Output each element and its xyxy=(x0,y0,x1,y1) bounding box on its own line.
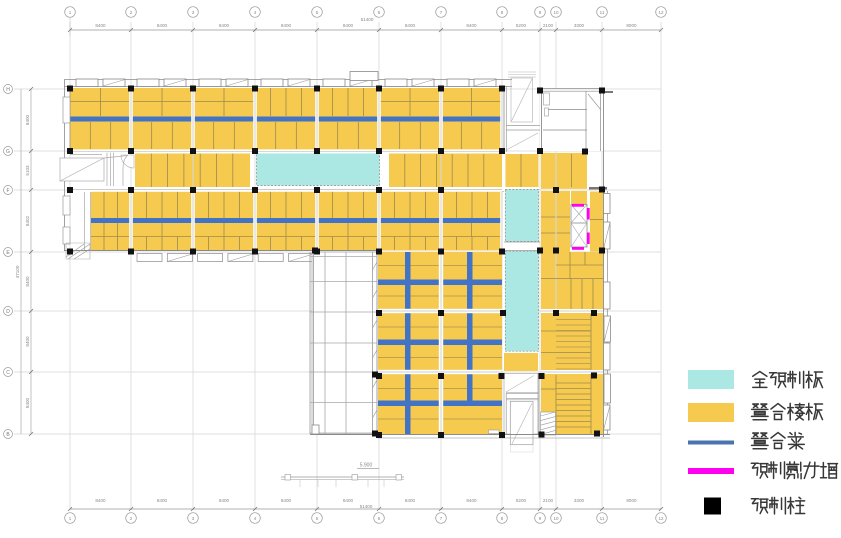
svg-text:D: D xyxy=(6,309,10,315)
svg-text:8400: 8400 xyxy=(219,23,230,28)
svg-text:8400: 8400 xyxy=(157,498,168,503)
svg-text:8400: 8400 xyxy=(95,498,106,503)
svg-text:8402: 8402 xyxy=(25,215,30,226)
svg-text:8400: 8400 xyxy=(25,397,30,408)
svg-text:8400: 8400 xyxy=(466,498,477,503)
svg-text:47100: 47100 xyxy=(15,265,20,278)
svg-text:8400: 8400 xyxy=(25,276,30,287)
svg-text:5103: 5103 xyxy=(25,165,30,176)
svg-text:11: 11 xyxy=(600,516,605,521)
svg-text:12: 12 xyxy=(658,10,664,15)
svg-text:3300: 3300 xyxy=(574,498,585,503)
svg-text:3300: 3300 xyxy=(574,23,585,28)
svg-text:2100: 2100 xyxy=(543,498,554,503)
svg-text:8400: 8400 xyxy=(95,23,106,28)
svg-text:5200: 5200 xyxy=(516,498,527,503)
svg-text:12: 12 xyxy=(658,516,664,521)
svg-text:C: C xyxy=(6,370,10,376)
svg-text:10: 10 xyxy=(553,10,559,15)
svg-text:8400: 8400 xyxy=(405,23,416,28)
svg-text:10: 10 xyxy=(553,516,559,521)
svg-text:11: 11 xyxy=(600,10,605,15)
svg-text:5.900: 5.900 xyxy=(360,463,373,469)
svg-text:8400: 8400 xyxy=(157,23,168,28)
svg-text:G: G xyxy=(6,149,10,155)
svg-text:8400: 8400 xyxy=(219,498,230,503)
svg-text:8000: 8000 xyxy=(626,498,637,503)
svg-text:8400: 8400 xyxy=(343,498,354,503)
svg-text:8400: 8400 xyxy=(25,336,30,347)
svg-text:8400: 8400 xyxy=(281,23,292,28)
svg-text:51400: 51400 xyxy=(360,504,373,509)
svg-text:2100: 2100 xyxy=(543,23,554,28)
svg-text:51400: 51400 xyxy=(361,17,374,22)
svg-text:5200: 5200 xyxy=(516,23,527,28)
svg-text:8400: 8400 xyxy=(281,498,292,503)
svg-text:H: H xyxy=(6,87,10,93)
svg-text:8000: 8000 xyxy=(626,23,637,28)
svg-text:8400: 8400 xyxy=(405,498,416,503)
svg-text:8400: 8400 xyxy=(343,23,354,28)
svg-text:8400: 8400 xyxy=(25,114,30,125)
svg-text:F: F xyxy=(6,188,9,194)
svg-text:8400: 8400 xyxy=(466,23,477,28)
